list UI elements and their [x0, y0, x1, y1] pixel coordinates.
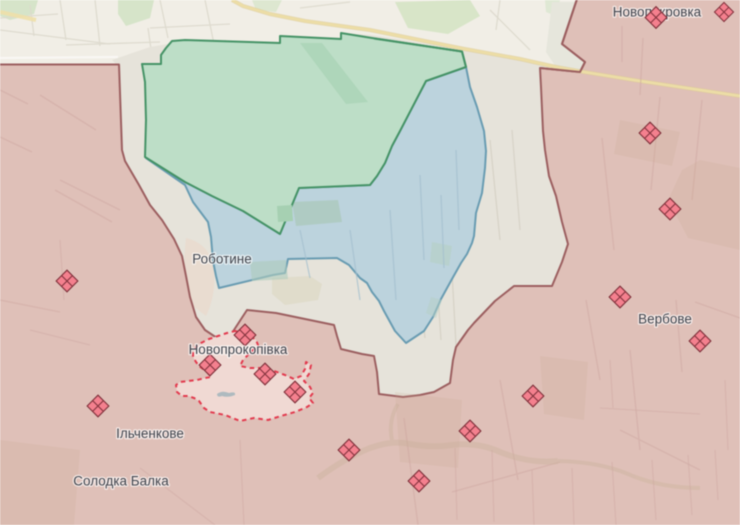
svg-text:Солодка Балка: Солодка Балка: [73, 474, 169, 489]
svg-text:Вербове: Вербове: [638, 312, 692, 327]
svg-text:Ільченкове: Ільченкове: [116, 426, 184, 441]
svg-text:Роботине: Роботине: [192, 252, 252, 267]
svg-text:Новопрокопівка: Новопрокопівка: [189, 342, 288, 357]
